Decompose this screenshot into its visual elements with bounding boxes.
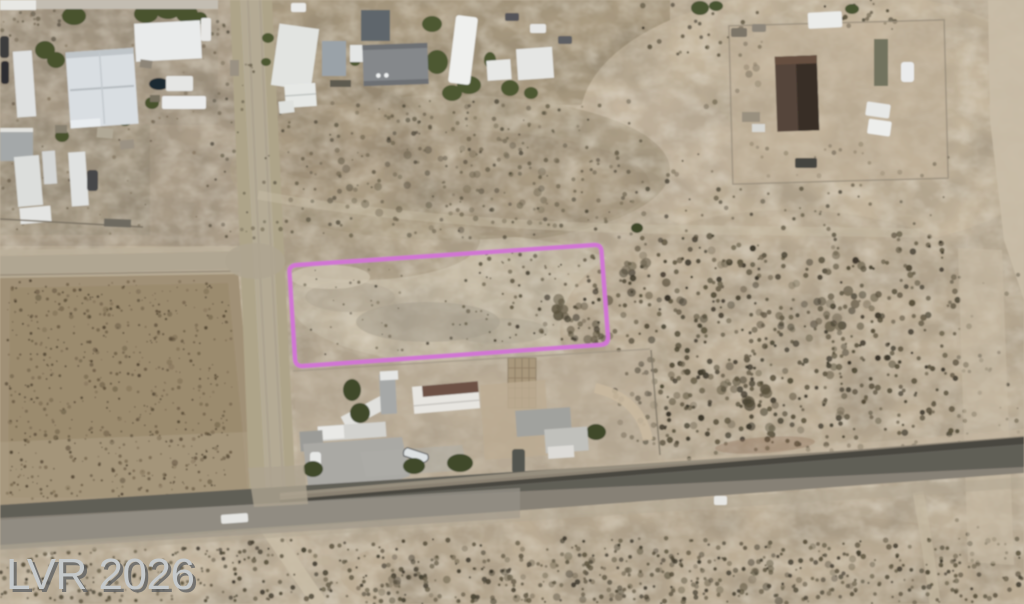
- svg-text:LVR 2026: LVR 2026: [6, 550, 194, 599]
